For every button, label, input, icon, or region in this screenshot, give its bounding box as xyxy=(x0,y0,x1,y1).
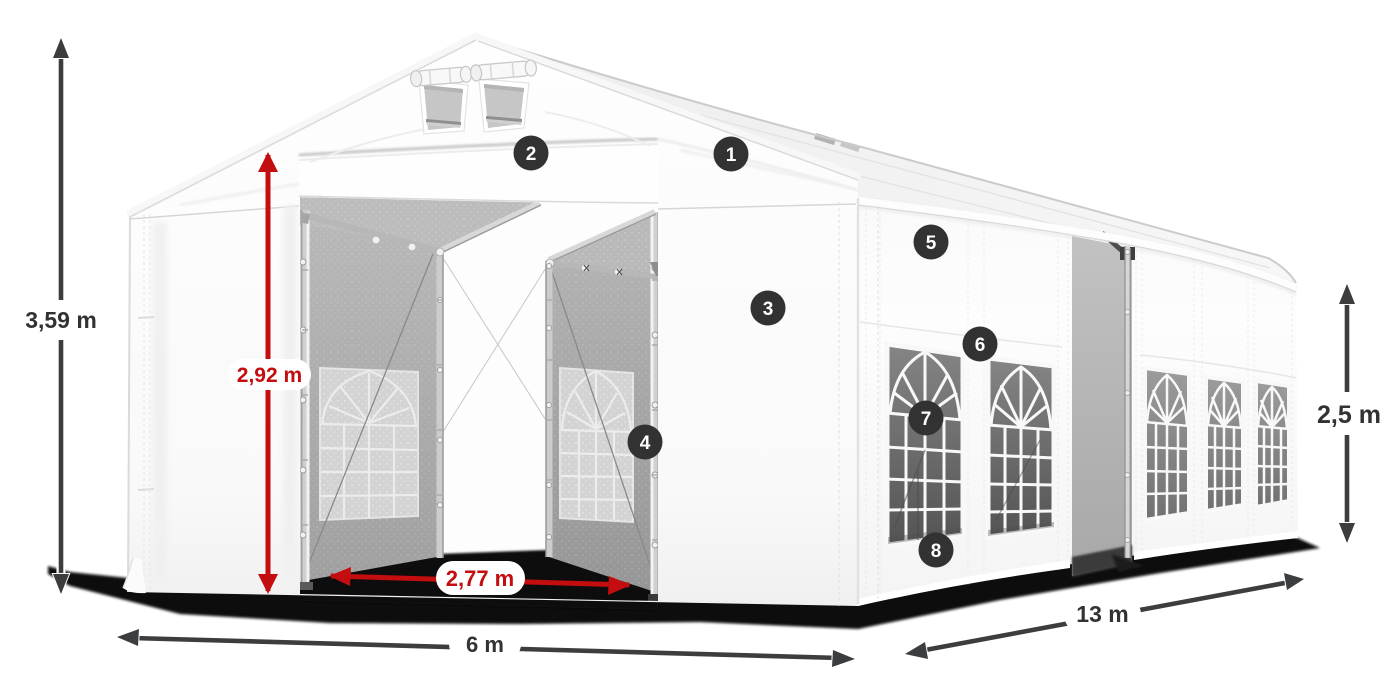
svg-text:6 m: 6 m xyxy=(466,632,504,657)
svg-text:2,77 m: 2,77 m xyxy=(446,566,515,591)
svg-text:3: 3 xyxy=(763,299,774,320)
svg-text:6: 6 xyxy=(975,335,986,356)
svg-text:5: 5 xyxy=(926,233,937,254)
svg-text:2: 2 xyxy=(526,144,537,165)
svg-text:13 m: 13 m xyxy=(1076,601,1128,627)
svg-text:2,5 m: 2,5 m xyxy=(1317,401,1381,429)
svg-text:8: 8 xyxy=(931,541,942,562)
svg-text:3,59 m: 3,59 m xyxy=(25,307,97,333)
svg-text:1: 1 xyxy=(726,145,737,166)
svg-text:4: 4 xyxy=(640,433,651,454)
svg-text:7: 7 xyxy=(921,409,932,430)
svg-text:2,92 m: 2,92 m xyxy=(237,364,302,387)
